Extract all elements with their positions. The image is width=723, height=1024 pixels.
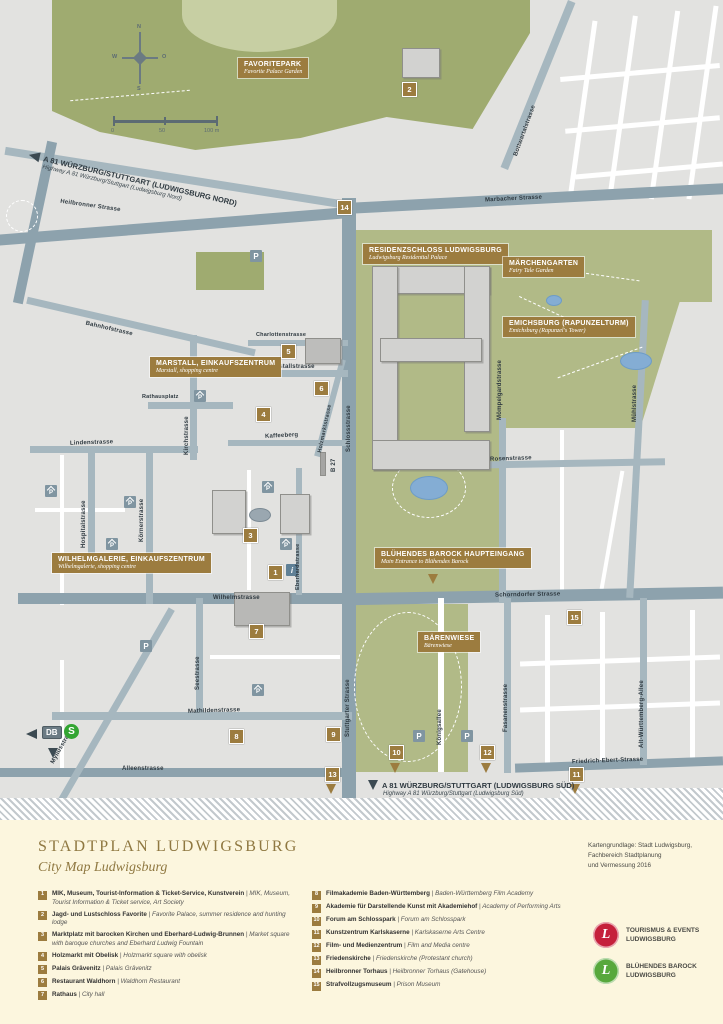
compass-east: O <box>162 54 166 60</box>
map-marker-14: 14 <box>337 200 352 215</box>
street-segment <box>686 6 718 200</box>
street-label: Königsallee <box>437 709 443 745</box>
map-edge-hatch <box>560 788 723 800</box>
parking-letter: P <box>266 486 270 492</box>
street-label: Fasanenstrasse <box>503 684 509 732</box>
legend-item: 5Palais Grävenitz Palais Grävenitz <box>38 965 296 975</box>
poi-subtitle: Wilhelmgalerie, shopping centre <box>58 564 205 570</box>
parking-letter: P <box>128 501 132 507</box>
info-letter: i <box>291 566 293 575</box>
legend-en: Friedenskirche (Protestant church) <box>373 955 473 962</box>
legend-number: 15 <box>312 982 321 991</box>
legend-en: Karlskaserne Arts Centre <box>411 929 485 936</box>
scale-start: 0 <box>111 128 114 134</box>
arrow-down-icon <box>368 780 378 790</box>
db-letters: DB <box>46 728 58 737</box>
marker-number: 1 <box>273 568 277 577</box>
road-alleenstrasse <box>0 768 352 777</box>
legend-en: Forum am Schlosspark <box>397 916 465 923</box>
street-label: Kaffeeberg <box>265 432 299 440</box>
legend-item: 15Strafvollzugsmuseum Prison Museum <box>312 981 604 991</box>
legend-en: Palais Grävenitz <box>102 965 151 972</box>
scale-mid: 50 <box>159 128 165 134</box>
legend-number: 14 <box>312 969 321 978</box>
legend-number: 3 <box>38 932 47 941</box>
parking-icon: P <box>140 640 152 652</box>
building-church-east <box>280 494 310 534</box>
legend-de: Holzmarkt mit Obelisk <box>52 952 118 959</box>
map-marker-4: 4 <box>256 407 271 422</box>
street-segment <box>560 63 720 82</box>
legend-number: 7 <box>38 991 47 1000</box>
marker-number: 8 <box>234 732 238 741</box>
marker-number: 12 <box>483 748 491 757</box>
legend-de: Rathaus <box>52 991 77 998</box>
roundabout <box>6 200 38 232</box>
poi-title: RESIDENZSCHLOSS LUDWIGSBURG <box>369 247 502 254</box>
legend-item: 6Restaurant Waldhorn Waldhorn Restaurant <box>38 978 296 988</box>
legend-de: Akademie für Darstellende Kunst mit Akad… <box>326 903 477 910</box>
legend-number: 12 <box>312 943 321 952</box>
legend-de: Forum am Schlosspark <box>326 916 396 923</box>
highway-title: A 81 WÜRZBURG/STUTTGART (LUDWIGSBURG SÜD… <box>382 781 574 790</box>
covered-parking-icon: P <box>106 538 118 550</box>
legend-number: 9 <box>312 904 321 913</box>
poi-title: WILHELMGALERIE, EINKAUFSZENTRUM <box>58 556 205 563</box>
parking-icon: P <box>250 250 262 262</box>
sbahn-icon: S <box>64 724 79 739</box>
poi-subtitle: Emichsburg (Rapunzel's Tower) <box>509 328 629 334</box>
credit-line: Fachbereich Stadtplanung <box>588 851 692 861</box>
covered-parking-icon: P <box>252 684 264 696</box>
legend-en: Film and Media centre <box>404 942 470 949</box>
parking-letter: P <box>416 733 421 741</box>
legend-en: Waldhorn Restaurant <box>117 978 180 985</box>
street-label: B 27 <box>331 459 337 472</box>
legend-column-right: 8Filmakademie Baden-Württemberg Baden-Wü… <box>312 890 604 994</box>
marker-number: 5 <box>286 347 290 356</box>
poi-title: BLÜHENDES BAROCK HAUPTEINGANG <box>381 551 525 558</box>
logo-letter: L <box>602 927 611 943</box>
legend-column-left: 1MIK, Museum, Tourist-Information & Tick… <box>38 890 296 1004</box>
legend-en: Heilbronner Torhaus (Gatehouse) <box>389 968 486 975</box>
tourismus-logo-icon: L <box>593 922 619 948</box>
map-marker-6: 6 <box>314 381 329 396</box>
logo-letter: L <box>602 963 611 979</box>
street-label: Seestrasse <box>195 656 201 690</box>
poi-label-emichsburg: EMICHSBURG (RAPUNZELTURM) Emichsburg (Ra… <box>503 317 635 337</box>
arrow-left-icon <box>26 729 37 739</box>
poi-subtitle: Bärenwiese <box>424 643 474 649</box>
poi-title: EMICHSBURG (RAPUNZELTURM) <box>509 320 629 327</box>
legend-item: 3Marktplatz mit barocken Kirchen und Ebe… <box>38 931 296 948</box>
poi-subtitle: Main Entrance to Blühendes Barock <box>381 559 525 565</box>
marker-number: 2 <box>407 85 411 94</box>
pond-small <box>546 295 562 306</box>
poi-title: BÄRENWIESE <box>424 635 474 642</box>
legend-en: Holzmarkt square with obelisk <box>120 952 207 959</box>
street-label: Hospitalstrasse <box>81 500 87 548</box>
legend-de: Heilbronner Torhaus <box>326 968 387 975</box>
marker-arrow-icon <box>481 763 491 773</box>
map-marker-2: 2 <box>402 82 417 97</box>
street-label: Mühlstrasse <box>632 385 638 422</box>
map-marker-1: 1 <box>268 565 283 580</box>
street-label: Stuttgarter Strasse <box>345 679 351 737</box>
street-label: Mömpelgardstrasse <box>497 360 503 420</box>
street-label: Heilbronner Strasse <box>60 199 121 213</box>
legend-item: 1MIK, Museum, Tourist-Information & Tick… <box>38 890 296 907</box>
compass-south: S <box>137 86 141 92</box>
logo-line: LUDWIGSBURG <box>626 971 697 980</box>
arrow-left-icon <box>28 150 41 162</box>
parking-letter: P <box>143 643 148 651</box>
parking-letter: P <box>256 689 260 695</box>
street-segment <box>690 610 695 765</box>
parking-letter: P <box>464 733 469 741</box>
map-canvas: P P P P P P P P P P P i Heilbronner Stra… <box>0 0 723 820</box>
legend-number: 10 <box>312 917 321 926</box>
legend-de: Jagd- und Lustschloss Favorite <box>52 911 147 918</box>
marker-number: 14 <box>340 203 348 212</box>
poi-title: MARSTALL, EINKAUFSZENTRUM <box>156 360 275 367</box>
marker-arrow-icon <box>390 763 400 773</box>
building-residenzschloss-south-wing <box>372 440 490 470</box>
legend-de: Marktplatz mit barocken Kirchen und Eber… <box>52 931 244 938</box>
map-marker-15: 15 <box>567 610 582 625</box>
street-segment <box>600 612 605 762</box>
street-label: Charlottenstrasse <box>256 332 306 338</box>
map-marker-9: 9 <box>326 727 341 742</box>
poi-subtitle: Ludwigsburg Residential Palace <box>369 255 502 261</box>
road-hospitalstrasse <box>88 452 95 567</box>
legend-number: 4 <box>38 952 47 961</box>
pond-south-garden <box>410 476 448 500</box>
street-label: Alt-Württemberg-Allee <box>639 680 645 748</box>
legend-number: 6 <box>38 978 47 987</box>
street-label: Wilhelmstrasse <box>213 595 260 601</box>
street-segment <box>210 655 340 659</box>
poi-label-residenzschloss: RESIDENZSCHLOSS LUDWIGSBURG Ludwigsburg … <box>363 244 508 264</box>
legend-de: Friedenskirche <box>326 955 371 962</box>
street-label: Körnerstrasse <box>139 499 145 542</box>
road-moempelgardstrasse <box>499 418 506 603</box>
poi-title: FAVORITEPARK <box>244 61 302 68</box>
legend-number: 2 <box>38 911 47 920</box>
db-station-icon: DB <box>42 726 62 739</box>
page-subtitle: City Map Ludwigsburg <box>38 860 167 876</box>
credit-line: und Vermessung 2016 <box>588 861 692 871</box>
logo-line: TOURISMUS & EVENTS <box>626 926 699 935</box>
parking-icon: P <box>413 730 425 742</box>
map-marker-5: 5 <box>281 344 296 359</box>
street-label: Kirchstrasse <box>184 416 190 455</box>
map-edge-hatch <box>0 798 723 820</box>
street-segment <box>545 615 550 765</box>
parking-letter: P <box>49 490 53 496</box>
pond-maerchengarten <box>620 352 652 370</box>
map-marker-11: 11 <box>569 767 584 782</box>
compass-west: W <box>112 54 117 60</box>
poi-title: MÄRCHENGARTEN <box>509 260 578 267</box>
map-marker-7: 7 <box>249 624 264 639</box>
legend-item: 2Jagd- und Lustschloss Favorite Favorite… <box>38 911 296 928</box>
legend-item: 7Rathaus City hall <box>38 991 296 1001</box>
park-area-maerchengarten <box>502 288 684 428</box>
logo-blueba: L BLÜHENDES BAROCKLUDWIGSBURG <box>593 958 697 984</box>
covered-parking-icon: P <box>262 481 274 493</box>
legend-item: 13Friedenskirche Friedenskirche (Protest… <box>312 955 604 965</box>
legend-de: Restaurant Waldhorn <box>52 978 115 985</box>
map-marker-3: 3 <box>243 528 258 543</box>
legend-item: 4Holzmarkt mit Obelisk Holzmarkt square … <box>38 952 296 962</box>
highway-subtitle: Highway A 81 Würzburg/Stuttgart (Ludwigs… <box>383 791 574 797</box>
street-label: Eberhardstrasse <box>295 544 301 590</box>
covered-parking-icon: P <box>194 390 206 402</box>
logo-line: BLÜHENDES BAROCK <box>626 962 697 971</box>
sbahn-letter: S <box>68 726 75 737</box>
legend-en: City hall <box>79 991 105 998</box>
street-segment <box>575 162 723 180</box>
legend-en: Academy of Performing Arts <box>479 903 561 910</box>
marker-arrow-icon <box>326 784 336 794</box>
legend-de: Kunstzentrum Karlskaserne <box>326 929 410 936</box>
legend-item: 11Kunstzentrum Karlskaserne Karlskaserne… <box>312 929 604 939</box>
legend-number: 13 <box>312 956 321 965</box>
building-palais <box>305 338 341 364</box>
map-marker-8: 8 <box>229 729 244 744</box>
street-label: Alleenstrasse <box>122 766 164 772</box>
marker-number: 4 <box>261 410 265 419</box>
road-lindenstrasse <box>30 446 198 453</box>
obelisk <box>320 452 326 476</box>
legend-de: Strafvollzugsmuseum <box>326 981 391 988</box>
city-map-page: P P P P P P P P P P P i Heilbronner Stra… <box>0 0 723 1024</box>
compass-north: N <box>137 24 141 30</box>
map-credit: Kartengrundlage: Stadt Ludwigsburg, Fach… <box>588 841 692 870</box>
road-kaffeeberg <box>228 440 348 446</box>
street-label: Rathausplatz <box>142 394 179 400</box>
legend-number: 1 <box>38 891 47 900</box>
poi-label-maerchengarten: MÄRCHENGARTEN Fairy Tale Garden <box>503 257 584 277</box>
covered-parking-icon: P <box>45 485 57 497</box>
street-segment <box>600 471 625 590</box>
poi-label-favoritepark: FAVORITEPARK Favorite Palace Garden <box>238 58 308 78</box>
legend-de: MIK, Museum, Tourist-Information & Ticke… <box>52 890 244 897</box>
covered-parking-icon: P <box>124 496 136 508</box>
parking-letter: P <box>253 253 258 261</box>
legend-de: Film- und Medienzentrum <box>326 942 402 949</box>
parking-letter: P <box>110 543 114 549</box>
blueba-logo-icon: L <box>593 958 619 984</box>
scale-end: 100 m <box>204 128 219 134</box>
building-church-west <box>212 490 246 534</box>
marker-number: 15 <box>570 613 578 622</box>
road-bahnhofstrasse <box>26 297 256 356</box>
road-rathausplatz <box>148 402 233 409</box>
street-label: Schlossstrasse <box>346 405 352 452</box>
street-segment <box>60 455 64 605</box>
legend-en: Prison Museum <box>393 981 440 988</box>
road-koernerstrasse <box>146 452 153 604</box>
marker-number: 9 <box>331 730 335 739</box>
legend-number: 5 <box>38 965 47 974</box>
poi-label-wilhelmgalerie: WILHELMGALERIE, EINKAUFSZENTRUM Wilhelmg… <box>52 553 211 573</box>
legend-item: 14Heilbronner Torhaus Heilbronner Torhau… <box>312 968 604 978</box>
poi-label-baerenwiese: BÄRENWIESE Bärenwiese <box>418 632 480 652</box>
legend-de: Filmakademie Baden-Württemberg <box>326 890 430 897</box>
marker-number: 10 <box>392 748 400 757</box>
poi-subtitle: Favorite Palace Garden <box>244 69 302 75</box>
legend-de: Palais Grävenitz <box>52 965 101 972</box>
poi-label-blueba-haupteingang: BLÜHENDES BAROCK HAUPTEINGANG Main Entra… <box>375 548 531 568</box>
highway-label-south: A 81 WÜRZBURG/STUTTGART (LUDWIGSBURG SÜD… <box>368 780 574 797</box>
marker-number: 11 <box>573 770 581 779</box>
marker-number: 13 <box>328 770 336 779</box>
poi-label-marstall: MARSTALL, EINKAUFSZENTRUM Marstall, shop… <box>150 357 281 377</box>
street-segment <box>35 508 125 512</box>
legend-en: Baden-Württemberg Film Academy <box>432 890 534 897</box>
building-favorite-palace <box>402 48 440 78</box>
legend-number: 11 <box>312 930 321 939</box>
entrance-arrow-icon <box>428 574 438 584</box>
poi-subtitle: Marstall, shopping centre <box>156 368 275 374</box>
arrow-down-icon <box>48 748 58 758</box>
footer-panel: STADTPLAN LUDWIGSBURG City Map Ludwigsbu… <box>0 820 723 1024</box>
marker-number: 6 <box>319 384 323 393</box>
legend-item: 12Film- und Medienzentrum Film and Media… <box>312 942 604 952</box>
parking-icon: P <box>461 730 473 742</box>
map-marker-12: 12 <box>480 745 495 760</box>
marker-number: 3 <box>248 531 252 540</box>
fountain-marktplatz <box>249 508 271 522</box>
street-segment <box>560 430 564 590</box>
building-residenzschloss-middle-wing <box>380 338 482 362</box>
legend-number: 8 <box>312 891 321 900</box>
street-label: Schorndorfer Strasse <box>495 591 560 598</box>
parking-letter: P <box>284 543 288 549</box>
logo-line: LUDWIGSBURG <box>626 935 699 944</box>
logo-tourismus: L TOURISMUS & EVENTSLUDWIGSBURG <box>593 922 699 948</box>
credit-line: Kartengrundlage: Stadt Ludwigsburg, <box>588 841 692 851</box>
covered-parking-icon: P <box>280 538 292 550</box>
legend-item: 10Forum am Schlosspark Forum am Schlossp… <box>312 916 604 926</box>
map-marker-13: 13 <box>325 767 340 782</box>
road-heilbronner <box>0 207 350 246</box>
legend-item: 8Filmakademie Baden-Württemberg Baden-Wü… <box>312 890 604 900</box>
legend-item: 9Akademie für Darstellende Kunst mit Aka… <box>312 903 604 913</box>
poi-subtitle: Fairy Tale Garden <box>509 268 578 274</box>
page-title: STADTPLAN LUDWIGSBURG <box>38 838 298 856</box>
map-marker-10: 10 <box>389 745 404 760</box>
marker-number: 7 <box>254 627 258 636</box>
parking-letter: P <box>198 395 202 401</box>
